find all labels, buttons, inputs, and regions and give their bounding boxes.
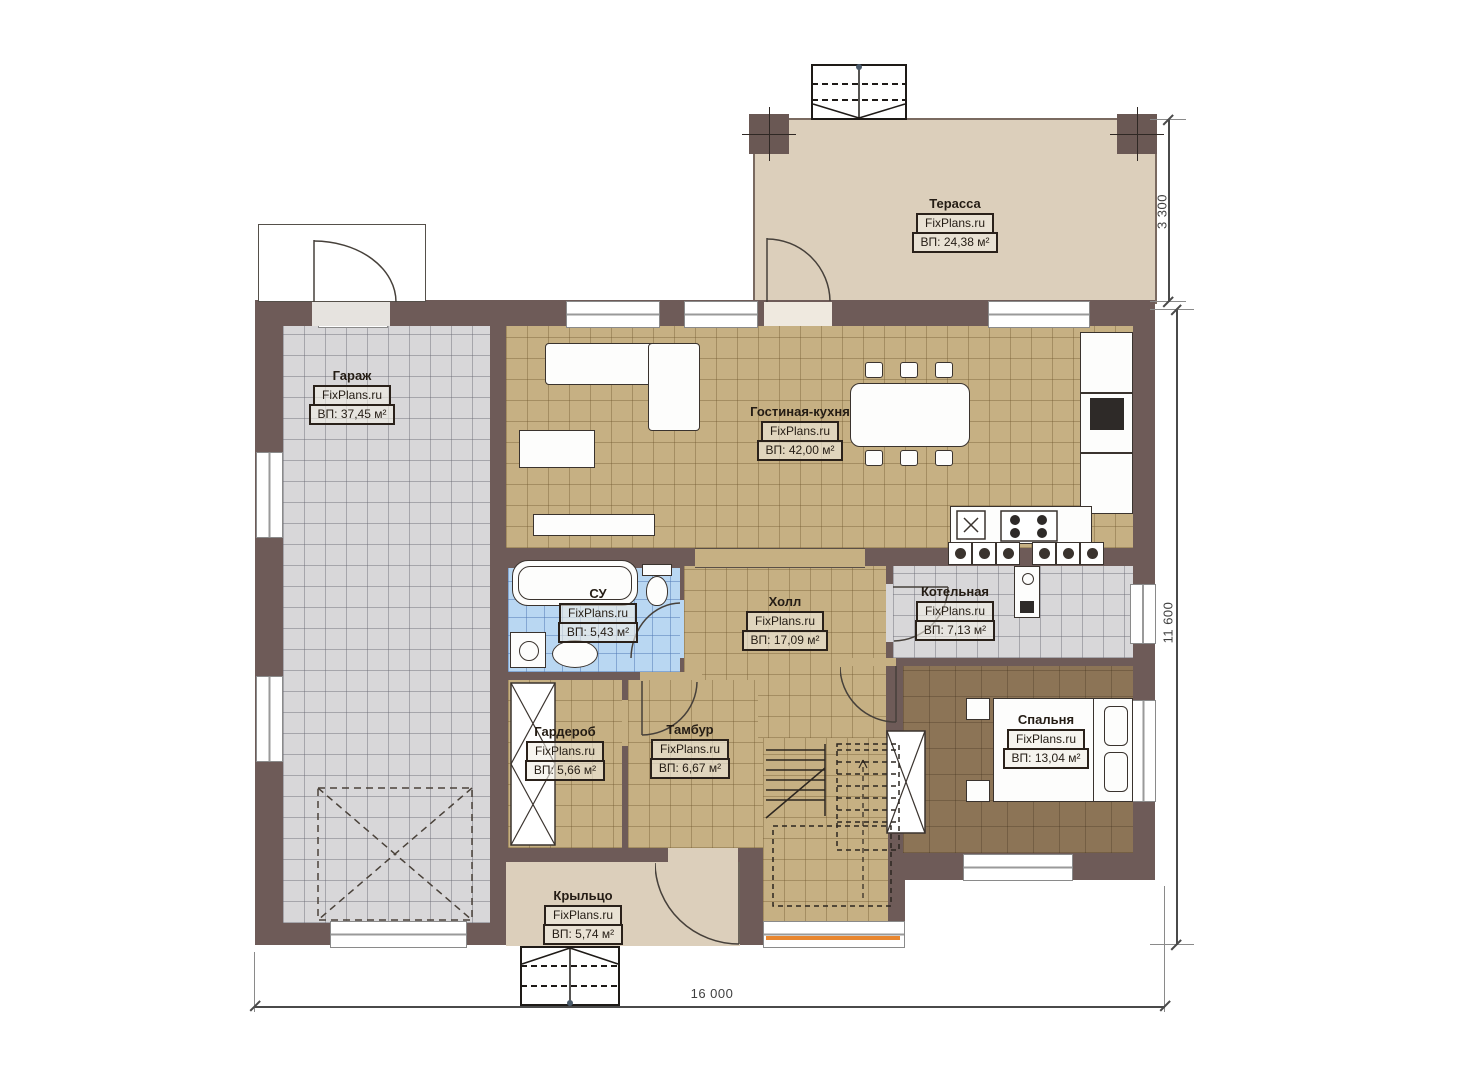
nightstand — [966, 780, 990, 802]
dining-chair — [935, 450, 953, 466]
tv-console — [533, 514, 655, 536]
witness-line — [1150, 944, 1194, 945]
door-arc-porch — [655, 862, 741, 945]
oven-icon — [1090, 398, 1124, 430]
room-label-garage: Гараж FixPlans.ru ВП: 37,45 м² — [296, 368, 408, 425]
room-title: Гараж — [333, 368, 372, 383]
room-title: Гостиная-кухня — [750, 404, 850, 419]
watermark: FixPlans.ru — [526, 741, 604, 762]
room-title: СУ — [589, 586, 606, 601]
terrace-steps-icon — [811, 64, 907, 120]
door-arc-garage-entry — [313, 240, 397, 303]
room-label-wardrobe: Гардероб FixPlans.ru ВП: 5,66 м² — [517, 724, 613, 781]
watermark: FixPlans.ru — [1007, 729, 1085, 750]
dim-line-height — [1176, 310, 1178, 945]
dim-label-width: 16 000 — [662, 986, 762, 1001]
staircase — [763, 738, 903, 923]
cabinet-knob — [996, 542, 1020, 565]
garage-parking-zone — [316, 786, 474, 922]
room-area: ВП: 7,13 м² — [915, 620, 995, 641]
window-garage-left-1 — [256, 452, 283, 538]
room-label-bedroom: Спальня FixPlans.ru ВП: 13,04 м² — [990, 712, 1102, 769]
watermark: FixPlans.ru — [916, 213, 994, 234]
room-title: Котельная — [921, 584, 989, 599]
door-gap-garage-top — [312, 302, 390, 326]
window-living-top-2 — [684, 301, 758, 328]
dim-label-terrace-depth: 3 300 — [1155, 182, 1170, 242]
dining-chair — [900, 362, 918, 378]
window-sill-accent — [766, 936, 900, 940]
watermark: FixPlans.ru — [313, 385, 391, 406]
terrace-pillar-right — [1117, 114, 1157, 154]
room-area: ВП: 17,09 м² — [742, 630, 829, 651]
floor-plan: Терасса FixPlans.ru ВП: 24,38 м² Гараж F… — [0, 0, 1473, 1080]
room-area: ВП: 5,43 м² — [558, 622, 638, 643]
watermark: FixPlans.ru — [651, 739, 729, 760]
porch-steps-icon — [520, 946, 620, 1006]
dim-label-height: 11 600 — [1161, 588, 1176, 658]
counter-divider — [1080, 392, 1133, 394]
room-area: ВП: 5,74 м² — [543, 924, 623, 945]
door-arc-bedroom — [840, 666, 897, 723]
dining-chair — [935, 362, 953, 378]
window-boiler-right — [1130, 584, 1156, 644]
room-title: Спальня — [1018, 712, 1074, 727]
pillow — [1104, 706, 1128, 746]
toilet-tank — [642, 564, 672, 576]
door-gap-bedroom — [838, 658, 896, 666]
room-label-hall: Холл FixPlans.ru ВП: 17,09 м² — [729, 594, 841, 651]
window-bedroom-right — [1131, 700, 1156, 802]
door-arc-terrace — [766, 238, 831, 302]
door-gap-vestibule — [640, 672, 702, 680]
room-area: ВП: 42,00 м² — [757, 440, 844, 461]
room-area: ВП: 37,45 м² — [309, 404, 396, 425]
dining-chair — [865, 450, 883, 466]
watermark: FixPlans.ru — [761, 421, 839, 442]
washing-machine — [510, 632, 546, 668]
pillow — [1104, 752, 1128, 792]
watermark: FixPlans.ru — [544, 905, 622, 926]
door-gap-terrace — [764, 302, 832, 326]
cabinet-knob — [1032, 542, 1056, 565]
watermark: FixPlans.ru — [746, 611, 824, 632]
cabinet-knob — [972, 542, 996, 565]
witness-line — [1150, 309, 1194, 310]
door-gap-wardrobe — [622, 700, 628, 746]
window-bedroom-bottom — [963, 854, 1073, 881]
room-area: ВП: 6,67 м² — [650, 758, 730, 779]
window-stairs-bottom — [763, 921, 905, 948]
cabinet-knob — [1056, 542, 1080, 565]
cabinet-knob — [948, 542, 972, 565]
garage-gate — [330, 921, 467, 948]
room-label-terrace: Терасса FixPlans.ru ВП: 24,38 м² — [895, 196, 1015, 253]
dining-chair — [865, 362, 883, 378]
door-gap-porch — [668, 848, 738, 862]
watermark: FixPlans.ru — [559, 603, 637, 624]
door-gap-boiler — [886, 584, 893, 642]
room-title: Холл — [769, 594, 802, 609]
room-label-living-kitchen: Гостиная-кухня FixPlans.ru ВП: 42,00 м² — [735, 404, 865, 461]
cabinet-knob — [1080, 542, 1104, 565]
room-title: Терасса — [929, 196, 981, 211]
room-area: ВП: 13,04 м² — [1003, 748, 1090, 769]
sofa-chaise — [648, 343, 700, 431]
sink-icon — [956, 510, 986, 540]
room-area: ВП: 5,66 м² — [525, 760, 605, 781]
room-title: Тамбур — [666, 722, 713, 737]
window-garage-left-2 — [256, 676, 283, 762]
nightstand — [966, 698, 990, 720]
cased-opening-living-hall — [695, 548, 865, 568]
room-area: ВП: 24,38 м² — [912, 232, 999, 253]
room-label-bathroom: СУ FixPlans.ru ВП: 5,43 м² — [548, 586, 648, 643]
counter-divider — [1080, 452, 1133, 454]
toilet-bowl — [646, 576, 668, 606]
window-kitchen-top — [988, 301, 1090, 328]
dining-chair — [900, 450, 918, 466]
terrace-pillar-left — [749, 114, 789, 154]
room-label-porch: Крыльцо FixPlans.ru ВП: 5,74 м² — [527, 888, 639, 945]
dining-table — [850, 383, 970, 447]
witness-line — [1164, 886, 1165, 1012]
room-label-boiler: Котельная FixPlans.ru ВП: 7,13 м² — [899, 584, 1011, 641]
boiler-unit — [1014, 566, 1040, 618]
coffee-table — [519, 430, 595, 468]
room-title: Крыльцо — [553, 888, 612, 903]
dim-line-width — [255, 1006, 1165, 1008]
window-living-top-1 — [566, 301, 660, 328]
washbasin — [552, 640, 598, 668]
room-title: Гардероб — [534, 724, 595, 739]
hob-icon — [1000, 510, 1058, 542]
room-label-vestibule: Тамбур FixPlans.ru ВП: 6,67 м² — [634, 722, 746, 779]
watermark: FixPlans.ru — [916, 601, 994, 622]
